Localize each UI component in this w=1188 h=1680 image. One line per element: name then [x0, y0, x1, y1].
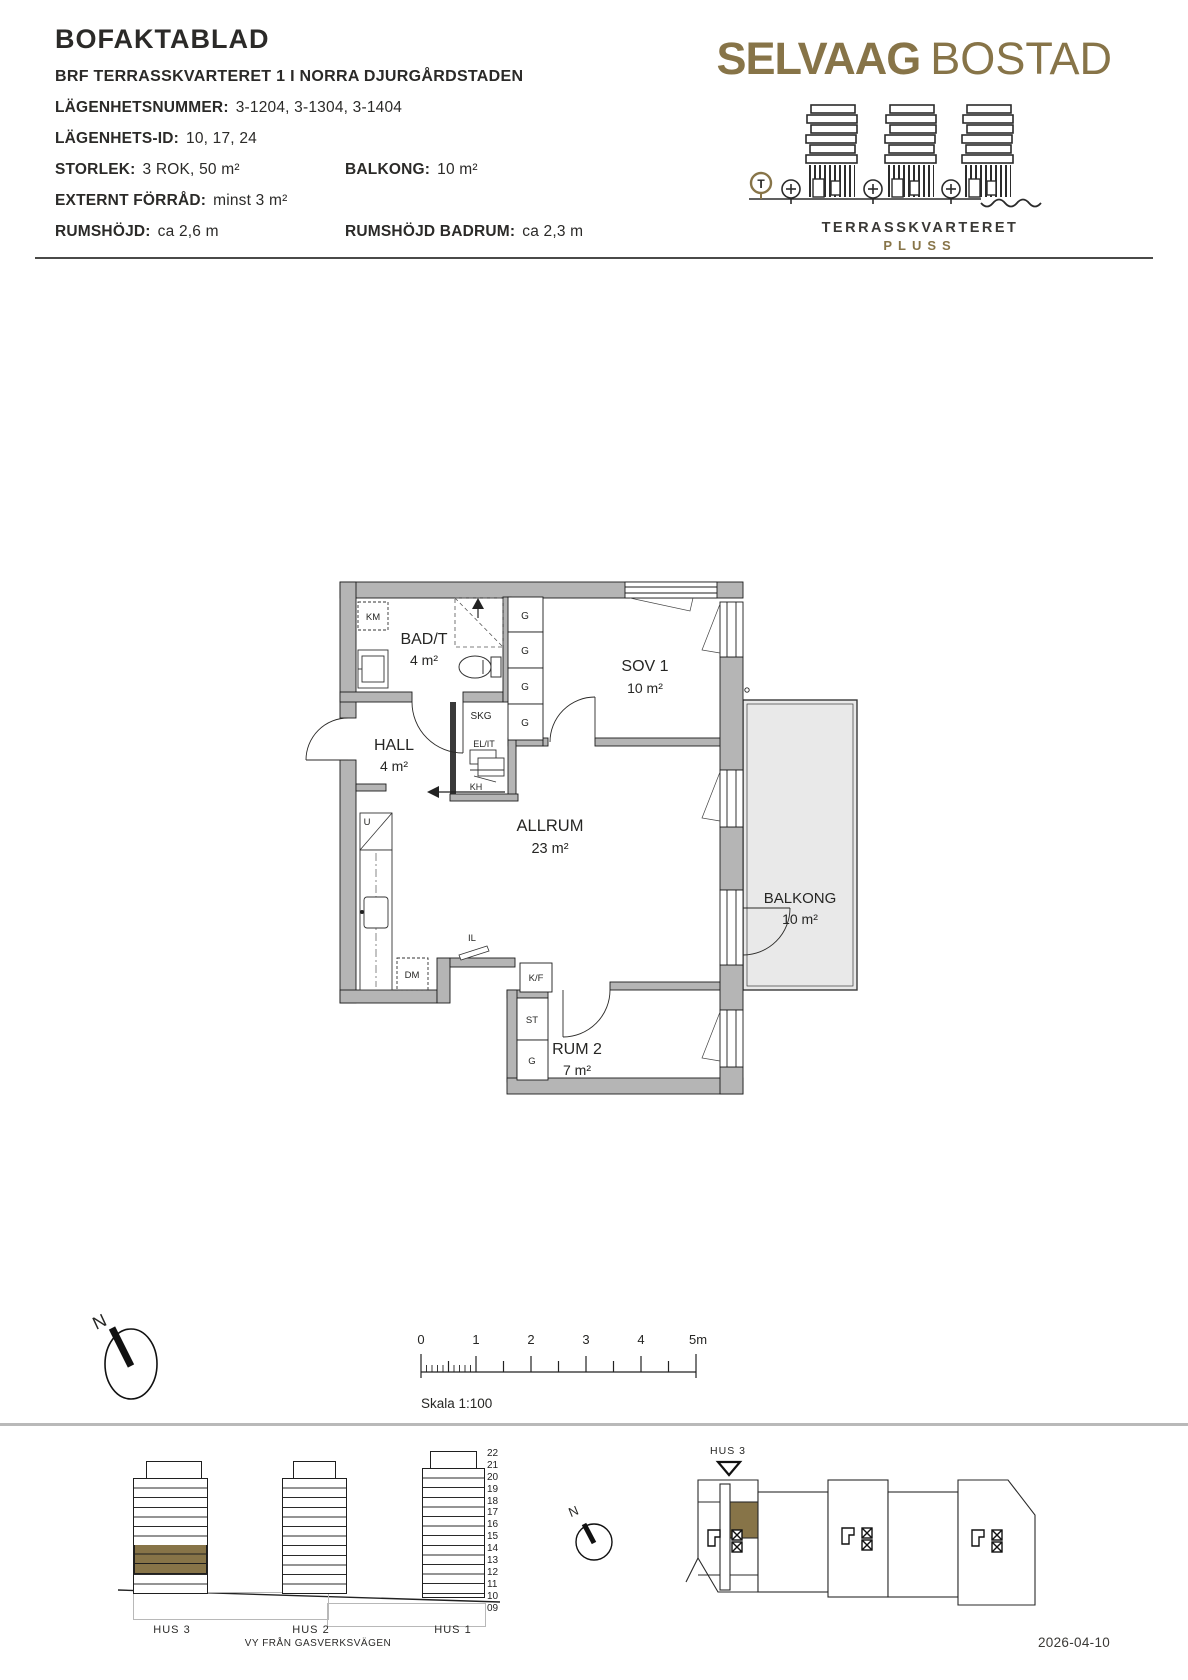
brand-secondary: BOSTAD — [930, 33, 1112, 85]
field-value: ca 2,6 m — [158, 223, 219, 240]
field-value: 10 m² — [437, 161, 478, 178]
floor-number: 19 — [487, 1484, 498, 1496]
elevator-icon — [732, 1542, 742, 1552]
kitchen-sink-icon — [360, 897, 388, 928]
floor-plan: G G G G K/F ST G KM — [300, 540, 860, 1100]
room-area-hall: 4 m² — [380, 758, 408, 774]
shower-arrow-icon — [472, 598, 484, 618]
selvaag-bostad-logo: SELVAAG BOSTAD — [652, 33, 1112, 85]
floor-number: 14 — [487, 1543, 498, 1555]
balcony-area — [743, 700, 857, 990]
room-label-balkong: BALKONG — [764, 890, 837, 907]
field-value: ca 2,3 m — [522, 223, 583, 240]
room-area-rum2: 7 m² — [563, 1062, 591, 1078]
field-value: 3 ROK, 50 m² — [143, 161, 240, 178]
wardrobe-label: G — [528, 1056, 535, 1067]
compass-icon: N — [85, 1298, 175, 1413]
room-label-bad: BAD/T — [400, 631, 447, 648]
closet-label-kh: KH — [470, 782, 483, 792]
field-ceiling-height-bathroom: RUMSHÖJD BADRUM:ca 2,3 m — [345, 223, 583, 241]
scale-tick-label: 3 — [582, 1332, 589, 1347]
closet-label-elit: EL/IT — [473, 739, 495, 749]
bofaktablad-page: BOFAKTABLAD BRF TERRASSKVARTERET 1 I NOR… — [0, 0, 1188, 1680]
vent-icon: IL — [459, 933, 489, 960]
tower-icon — [962, 105, 1013, 197]
svg-text:T: T — [757, 177, 765, 191]
page-title: BOFAKTABLAD — [55, 24, 269, 55]
project-name: TERRASSKVARTERET — [770, 220, 1070, 236]
field-value: minst 3 m² — [213, 192, 287, 209]
wardrobe-label: G — [521, 718, 529, 729]
hus3-label: HUS 3 — [140, 1624, 204, 1636]
floor-number: 18 — [487, 1496, 498, 1508]
corridor-strip — [720, 1484, 730, 1590]
tram-stop-icon: T — [751, 173, 771, 199]
tree-icon — [864, 180, 882, 204]
washing-machine-label: KM — [366, 612, 380, 623]
north-needle — [584, 1524, 594, 1543]
project-line: BRF TERRASSKVARTERET 1 I NORRA DJURGÅRDS… — [55, 68, 523, 86]
hus3-elevation — [133, 1478, 208, 1594]
field-balcony: BALKONG:10 m² — [345, 161, 478, 179]
window — [720, 770, 743, 827]
floor-number: 12 — [487, 1567, 498, 1579]
floor-number-column: 22 21 20 19 18 17 16 15 14 13 12 11 10 0… — [487, 1448, 498, 1614]
scale-tick-label: 4 — [637, 1332, 644, 1347]
floor-number: 22 — [487, 1448, 498, 1460]
field-label: LÄGENHETS-ID: — [55, 130, 179, 147]
north-label: N — [566, 1503, 580, 1520]
scale-caption: Skala 1:100 — [421, 1396, 492, 1411]
wardrobe-label: G — [521, 611, 529, 622]
floor-number: 11 — [487, 1579, 498, 1591]
elevator-icon — [862, 1540, 872, 1550]
floor-number: 17 — [487, 1507, 498, 1519]
window — [625, 582, 717, 598]
room-area-bad: 4 m² — [410, 652, 438, 668]
wardrobe-label: G — [521, 682, 529, 693]
hus1-elevation — [422, 1468, 485, 1598]
scale-tick-label: 2 — [527, 1332, 534, 1347]
highlighted-floors — [134, 1545, 207, 1574]
room-label-sov1: SOV 1 — [621, 658, 668, 675]
scale-tick-label: 1 — [472, 1332, 479, 1347]
document-date: 2026-04-10 — [1038, 1635, 1148, 1650]
toilet-icon — [459, 656, 501, 678]
connector-wing — [888, 1492, 958, 1597]
room-area-allrum: 23 m² — [531, 841, 568, 857]
tree-icon — [782, 180, 800, 204]
field-label: STORLEK: — [55, 161, 136, 178]
kitchen-fixtures: U DM — [360, 813, 428, 990]
tower-icon — [885, 105, 936, 197]
field-value: 10, 17, 24 — [186, 130, 257, 147]
footer-divider — [0, 1423, 1188, 1426]
room2-door-arc — [563, 990, 610, 1037]
header-divider — [35, 257, 1153, 259]
floor-number: 09 — [487, 1603, 498, 1615]
window — [720, 602, 743, 657]
elevator-icon — [992, 1542, 1002, 1552]
brand-primary: SELVAAG — [716, 33, 920, 85]
site-boundary-line — [686, 1558, 698, 1582]
north-needle — [112, 1328, 131, 1366]
field-size: STORLEK:3 ROK, 50 m² — [55, 161, 240, 179]
terrace-outline — [133, 1592, 329, 1620]
terrasskvarteret-towers-icon: T — [745, 103, 1060, 218]
floor-number: 15 — [487, 1531, 498, 1543]
scale-tick-label: 0 — [417, 1332, 424, 1347]
field-storage: EXTERNT FÖRRÅD:minst 3 m² — [55, 192, 287, 210]
field-value: 3-1204, 3-1304, 3-1404 — [236, 99, 402, 116]
location-pointer-icon — [718, 1462, 740, 1475]
elevation-caption: VY FRÅN GASVERKSVÄGEN — [228, 1638, 408, 1649]
cabinet-label: U — [364, 817, 371, 828]
dishwasher-label: DM — [405, 970, 420, 981]
svg-text:IL: IL — [468, 933, 476, 944]
closet-wall — [450, 702, 456, 798]
room-label-hall: HALL — [374, 737, 414, 754]
hall-wall — [450, 794, 518, 801]
field-label: RUMSHÖJD BADRUM: — [345, 223, 515, 240]
hus2-footprint — [828, 1480, 888, 1597]
electrical-cabinet-icon — [470, 750, 504, 782]
connector-wing — [758, 1492, 828, 1592]
hus1-label: HUS 1 — [421, 1624, 485, 1636]
scale-tick-label: 5m — [689, 1332, 707, 1347]
elevator-icon — [992, 1530, 1002, 1540]
room-label-allrum: ALLRUM — [517, 817, 584, 835]
field-apartment-ids: LÄGENHETS-ID:10, 17, 24 — [55, 130, 257, 148]
elevator-icon — [862, 1528, 872, 1538]
room-label-rum2: RUM 2 — [552, 1041, 602, 1058]
project-suffix: PLUSS — [770, 238, 1070, 253]
room-area-balkong: 10 m² — [782, 911, 818, 927]
bedroom-door-arc — [550, 697, 595, 742]
field-label: RUMSHÖJD: — [55, 223, 151, 240]
window — [720, 1010, 743, 1067]
field-ceiling-height: RUMSHÖJD:ca 2,6 m — [55, 223, 219, 241]
fridge-freezer-label: K/F — [529, 973, 544, 984]
field-label: BALKONG: — [345, 161, 430, 178]
elevator-icon — [732, 1530, 742, 1540]
hus2-label: HUS 2 — [279, 1624, 343, 1636]
floor-number: 21 — [487, 1460, 498, 1472]
floor-number: 20 — [487, 1472, 498, 1484]
wardrobe-label: G — [521, 646, 529, 657]
field-label: LÄGENHETSNUMMER: — [55, 99, 229, 116]
siteplan-hus3-label: HUS 3 — [710, 1445, 746, 1457]
scale-bar: 0 1 2 3 4 5m Skala 1:100 — [415, 1330, 710, 1420]
sink-icon — [358, 650, 388, 688]
floor-number: 16 — [487, 1519, 498, 1531]
site-plan: HUS 3 — [640, 1438, 1120, 1628]
floor-number: 13 — [487, 1555, 498, 1567]
door-handle-dot — [745, 688, 749, 692]
balcony-door — [720, 890, 743, 965]
hus2-elevation — [282, 1478, 347, 1594]
siteplan-compass-icon: N — [565, 1500, 625, 1570]
closet-label-skg: SKG — [470, 711, 491, 722]
entry-door-arc — [306, 718, 348, 760]
floor-number: 10 — [487, 1591, 498, 1603]
tower-icon — [806, 105, 857, 197]
cleaning-closet-label: ST — [526, 1015, 538, 1026]
north-label: N — [89, 1310, 109, 1334]
room-area-sov1: 10 m² — [627, 680, 663, 696]
field-label: EXTERNT FÖRRÅD: — [55, 192, 206, 209]
field-apartment-numbers: LÄGENHETSNUMMER:3-1204, 3-1304, 3-1404 — [55, 99, 402, 117]
tree-icon — [942, 180, 960, 204]
